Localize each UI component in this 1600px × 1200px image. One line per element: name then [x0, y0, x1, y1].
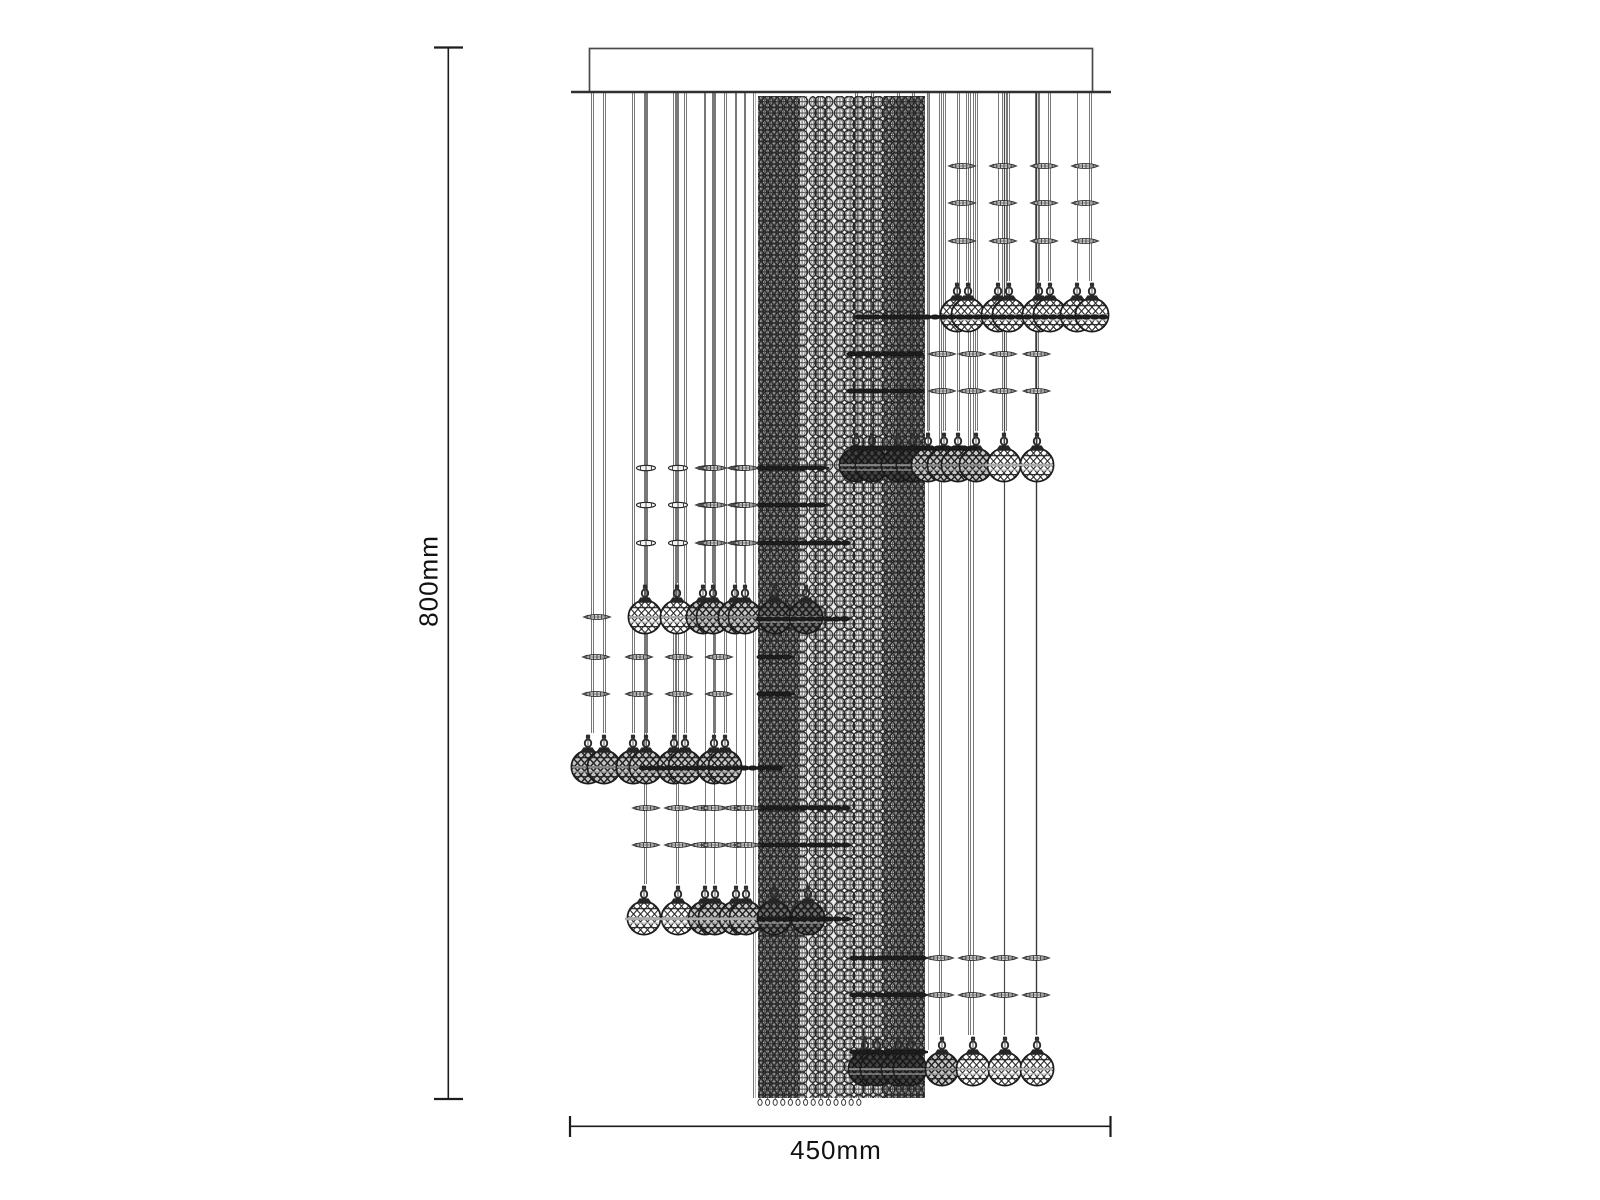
svg-text:800mm: 800mm [414, 535, 444, 627]
svg-text:450mm: 450mm [790, 1135, 882, 1165]
